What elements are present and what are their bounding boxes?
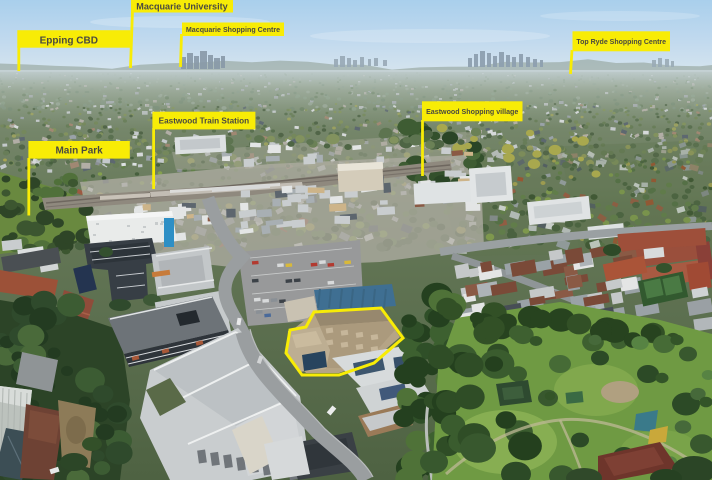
- svg-text:Macquarie Shopping Centre: Macquarie Shopping Centre: [186, 26, 280, 34]
- svg-text:Top Ryde Shopping Centre: Top Ryde Shopping Centre: [576, 39, 666, 46]
- svg-text:Macquarie University: Macquarie University: [136, 2, 228, 12]
- svg-text:Eastwood Train Station: Eastwood Train Station: [159, 117, 250, 126]
- svg-text:Epping CBD: Epping CBD: [40, 35, 98, 46]
- svg-text:Main Park: Main Park: [55, 145, 103, 156]
- svg-text:Eastwood Shopping village: Eastwood Shopping village: [426, 108, 518, 116]
